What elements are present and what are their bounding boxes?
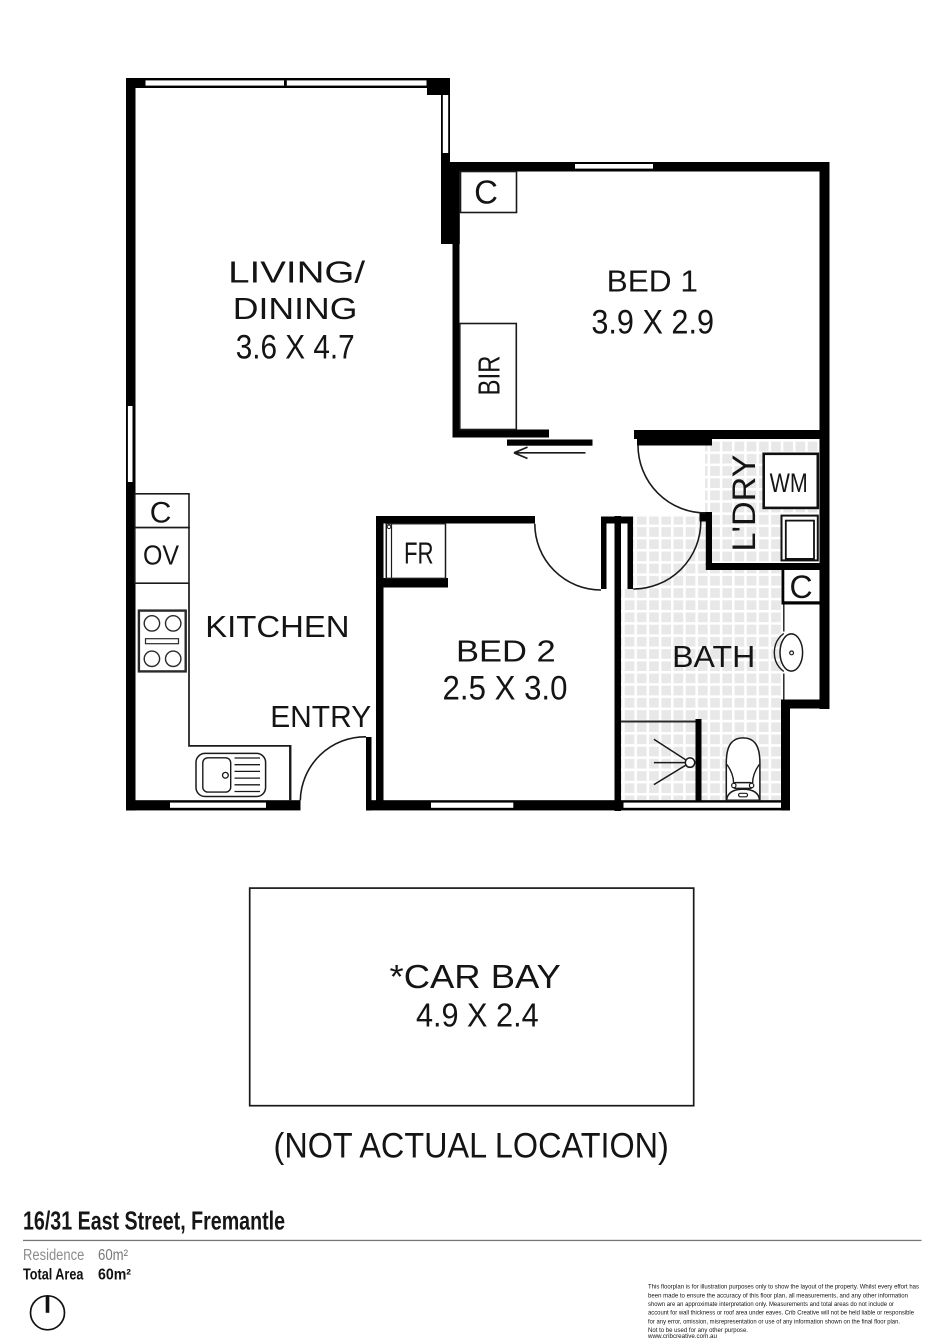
svg-text:KITCHEN: KITCHEN — [205, 609, 349, 644]
svg-text:C: C — [789, 569, 812, 605]
svg-text:Total Area: Total Area — [23, 1266, 84, 1283]
svg-text:C: C — [150, 497, 172, 530]
svg-text:*CAR BAY: *CAR BAY — [390, 958, 561, 995]
svg-text:ENTRY: ENTRY — [270, 699, 371, 734]
svg-text:This floorplan is for illustra: This floorplan is for illustration purpo… — [648, 1284, 920, 1291]
svg-text:LIVING/: LIVING/ — [228, 255, 365, 290]
svg-text:www.cribcreative.com.au: www.cribcreative.com.au — [647, 1333, 717, 1339]
svg-text:been made to ensure the accura: been made to ensure the accuracy of this… — [648, 1292, 908, 1299]
svg-text:BIR: BIR — [472, 356, 507, 396]
svg-text:shown are an approximate inter: shown are an approximate interpretation … — [648, 1301, 895, 1308]
svg-text:OV: OV — [143, 540, 179, 571]
svg-text:FR: FR — [404, 536, 434, 571]
svg-text:4.9 X 2.4: 4.9 X 2.4 — [416, 997, 539, 1034]
svg-text:for any error, omission, misre: for any error, omission, misrepresentati… — [648, 1318, 900, 1325]
svg-text:3.6 X 4.7: 3.6 X 4.7 — [236, 328, 355, 366]
svg-text:L'DRY: L'DRY — [726, 455, 762, 552]
svg-text:BED 1: BED 1 — [607, 263, 698, 298]
svg-text:3.9 X 2.9: 3.9 X 2.9 — [591, 304, 714, 342]
svg-text:C: C — [474, 173, 498, 210]
svg-text:Residence: Residence — [23, 1247, 84, 1264]
svg-text:DINING: DINING — [233, 291, 358, 326]
svg-text:60m²: 60m² — [98, 1247, 128, 1264]
svg-text:BED 2: BED 2 — [456, 633, 556, 668]
svg-text:2.5 X 3.0: 2.5 X 3.0 — [443, 670, 568, 708]
svg-text:BATH: BATH — [672, 639, 755, 674]
svg-text:WM: WM — [770, 468, 808, 498]
svg-text:16/31 East Street, Fremantle: 16/31 East Street, Fremantle — [23, 1206, 285, 1236]
svg-text:account for wall thickness or: account for wall thickness or roof area … — [648, 1310, 914, 1317]
svg-text:(NOT ACTUAL LOCATION): (NOT ACTUAL LOCATION) — [274, 1126, 669, 1166]
svg-text:60m²: 60m² — [98, 1266, 131, 1283]
